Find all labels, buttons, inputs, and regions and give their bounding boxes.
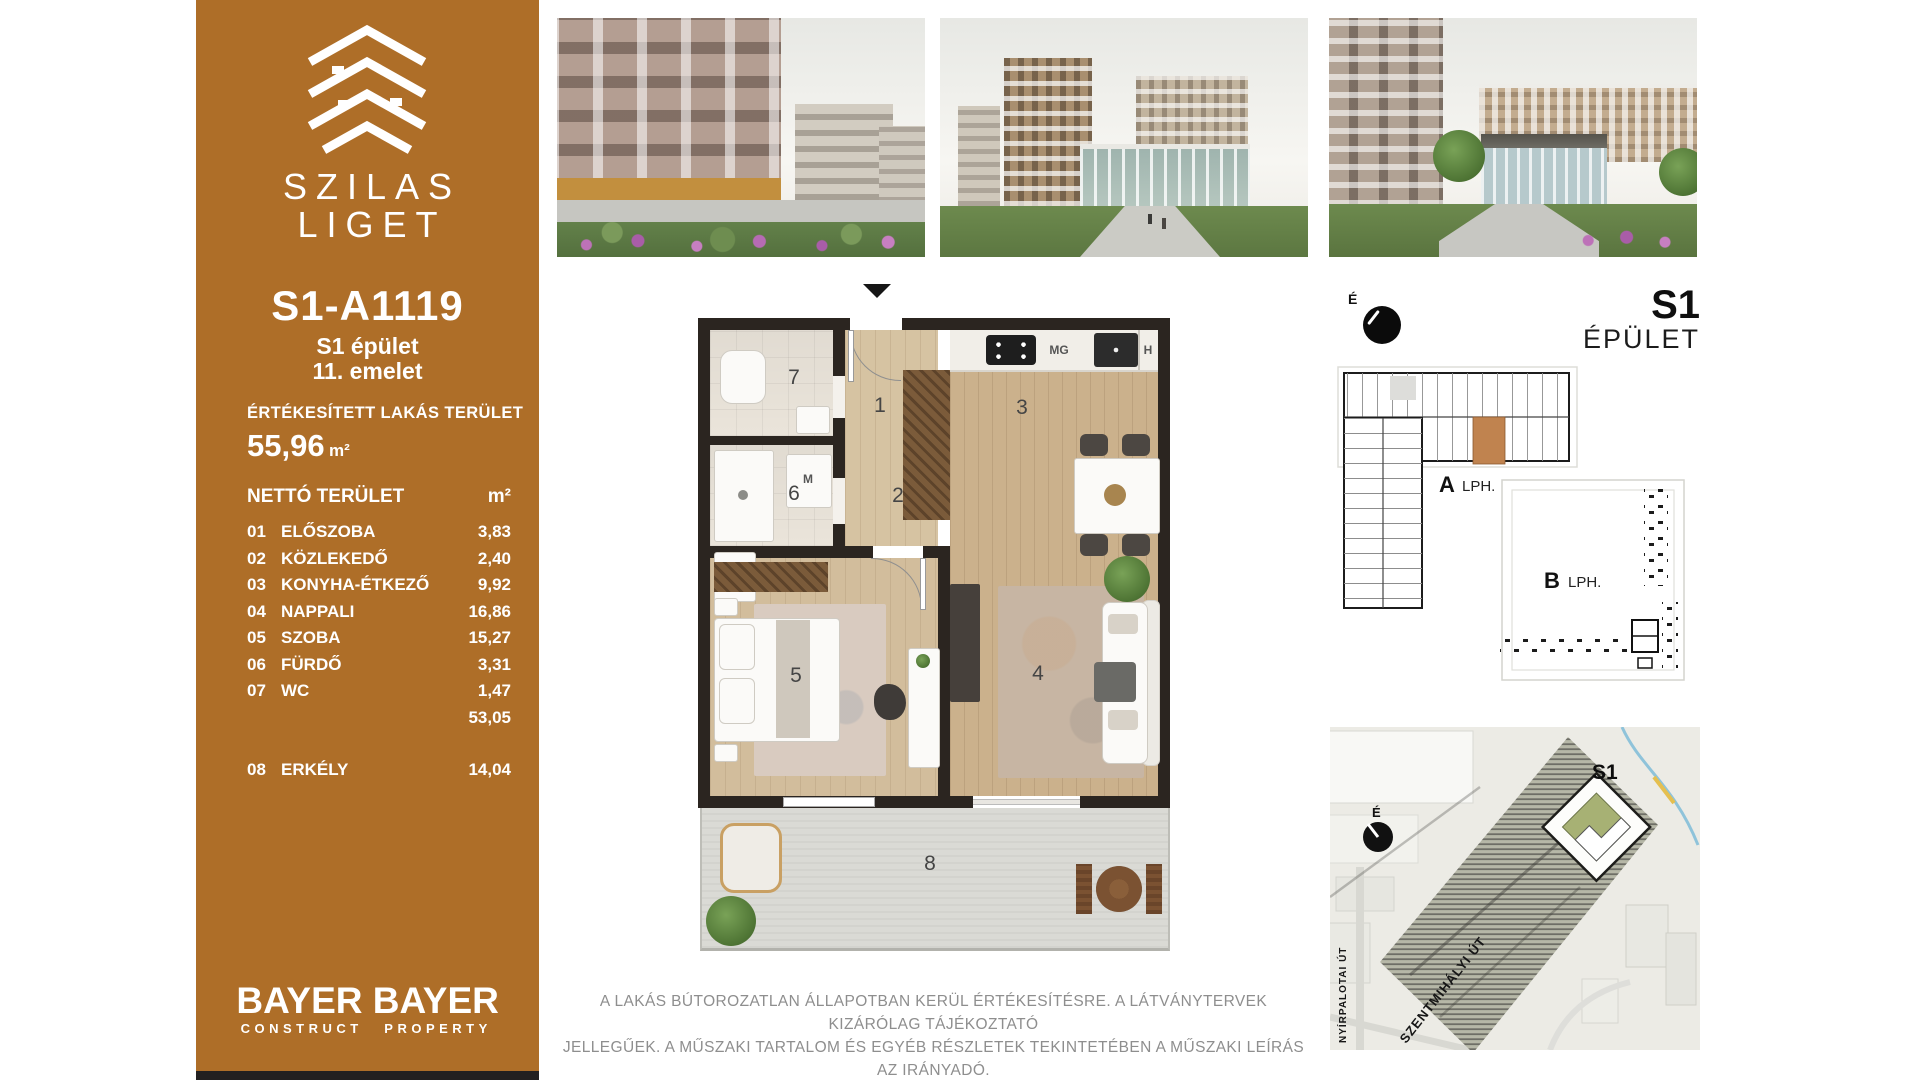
brand-name-top: SZILAS [196, 168, 539, 205]
room-name: NAPPALI [281, 602, 468, 622]
nightstand [714, 744, 738, 762]
building-title: S1 [1460, 286, 1700, 324]
north-label: É [1348, 291, 1357, 307]
room-area: 14,04 [468, 760, 511, 780]
render-photo-courtyard [557, 18, 925, 257]
floor-line: 11. emelet [196, 359, 539, 384]
glass-pavilion [1080, 144, 1250, 211]
wall [710, 436, 833, 445]
room-num: 05 [247, 628, 281, 648]
tree [1433, 130, 1485, 182]
flower-bed [557, 230, 925, 257]
building-title-block: S1 ÉPÜLET [1460, 286, 1700, 355]
terrace-plant [706, 896, 756, 946]
nightstand [714, 598, 738, 616]
net-area-unit-header: m² [488, 486, 511, 508]
room-area: 1,47 [478, 681, 511, 701]
disclaimer-line2: JELLEGŰEK. A MŰSZAKI TARTALOM ÉS EGYÉB R… [557, 1036, 1310, 1080]
a-wing-stair-core [1390, 376, 1416, 400]
table-row: 02 KÖZLEKEDŐ 2,40 [247, 549, 511, 576]
net-area-label: NETTÓ TERÜLET [247, 486, 404, 508]
compass-needle [1367, 310, 1380, 325]
s1-map-label: S1 [1592, 761, 1618, 784]
room-area: 3,31 [478, 655, 511, 675]
room-area: 16,86 [468, 602, 511, 622]
wc-door-gap [833, 376, 845, 418]
room-num: 07 [247, 681, 281, 701]
room-num: 06 [247, 655, 281, 675]
terrace-armchair [720, 823, 782, 893]
kitchen-sink [1094, 333, 1138, 367]
unit-id: S1-A1119 [196, 282, 539, 330]
sofa-throw [1094, 662, 1136, 702]
table-row-subtotal: 53,05 [247, 708, 511, 735]
b-wing-door-marks [1500, 638, 1650, 654]
room-area: 3,83 [478, 522, 511, 542]
compass-icon [1363, 306, 1401, 344]
room-number-hall: 1 [866, 394, 894, 418]
table-row: 01 ELŐSZOBA 3,83 [247, 522, 511, 549]
b-wing-door-marks [1662, 602, 1678, 668]
building-subtitle: ÉPÜLET [1460, 324, 1700, 355]
developer-logos: BAYER CONSTRUCT BAYER PROPERTY [196, 982, 539, 1035]
room-num: 08 [247, 760, 281, 780]
site-map: S1 É SZENTMIHÁLYI ÚT NYÍRPALOTAI ÚT [1330, 727, 1700, 1050]
bayer-property-line1: BAYER [373, 982, 499, 1019]
room-number-wc: 7 [780, 366, 808, 390]
terrace-table [1096, 866, 1142, 912]
room-number-bath: 6 [780, 482, 808, 506]
stair-a-suffix: LPH. [1462, 478, 1495, 495]
street-label-vertical: NYÍRPALOTAI ÚT [1336, 947, 1349, 1043]
highlighted-unit [1473, 417, 1505, 464]
shower-drain [738, 490, 748, 500]
pillow [719, 678, 755, 724]
map-building [1336, 877, 1394, 911]
pedestrian [1162, 218, 1166, 229]
dining-chair [1080, 434, 1108, 456]
sofa-cushion [1108, 614, 1138, 634]
room-name: WC [281, 681, 478, 701]
bath-door-gap [833, 478, 845, 524]
stair-b-suffix: LPH. [1568, 574, 1601, 591]
map-north-label: É [1372, 805, 1381, 820]
pedestrian [1148, 214, 1152, 224]
dining-chair [1122, 434, 1150, 456]
pillow [719, 624, 755, 670]
sidebar: SZILAS LIGET S1-A1119 S1 épület 11. emel… [196, 0, 539, 1080]
terrace-bench [1146, 864, 1162, 914]
wall [698, 318, 850, 330]
wc-sink [796, 406, 830, 434]
sold-area-value: 55,96 [247, 428, 325, 463]
brochure-page: SZILAS LIGET S1-A1119 S1 épület 11. emel… [0, 0, 1920, 1080]
room-number-living: 4 [1024, 662, 1052, 686]
room-name: FÜRDŐ [281, 655, 478, 675]
sidebar-footer-strip [196, 1071, 539, 1080]
room-num: 01 [247, 522, 281, 542]
bayer-construct-logo: BAYER CONSTRUCT [236, 982, 363, 1035]
tv-screen [976, 606, 981, 680]
room-table: 01 ELŐSZOBA 3,83 02 KÖZLEKEDŐ 2,40 03 KO… [247, 522, 511, 787]
brand-name-bottom: LIGET [196, 206, 539, 243]
table-row: 07 WC 1,47 [247, 681, 511, 708]
table-row: 03 KONYHA-ÉTKEZŐ 9,92 [247, 575, 511, 602]
wall [1080, 796, 1170, 808]
table-row: 06 FÜRDŐ 3,31 [247, 655, 511, 682]
entrance-door-leaf [848, 330, 854, 382]
bayer-construct-line1: BAYER [236, 982, 363, 1019]
fridge-label: H [1138, 343, 1158, 357]
bayer-property-line2: PROPERTY [373, 1022, 499, 1035]
sold-area-value-row: 55,96 m² [247, 428, 350, 464]
disclaimer: A LAKÁS BÚTOROZATLAN ÁLLAPOTBAN KERÜL ÉR… [557, 990, 1310, 1080]
disclaimer-line1: A LAKÁS BÚTOROZATLAN ÁLLAPOTBAN KERÜL ÉR… [557, 990, 1310, 1036]
room-number-bedroom: 5 [782, 664, 810, 688]
room-number-terrace: 8 [916, 852, 944, 876]
room-name: SZOBA [281, 628, 468, 648]
sold-area-label: ÉRTÉKESÍTETT LAKÁS TERÜLET [247, 404, 523, 423]
stair-a-label: A [1439, 472, 1455, 497]
entrance-arrow-icon [863, 284, 891, 298]
background-building [879, 126, 925, 202]
floor-plan: M MG H [698, 318, 1170, 955]
table-row: 08 ERKÉLY 14,04 [247, 760, 511, 787]
room-num: 04 [247, 602, 281, 622]
living-plant [1104, 556, 1150, 602]
terrace-sliding-door [973, 799, 1080, 805]
sofa-cushion [1108, 710, 1138, 730]
map-building [1666, 933, 1696, 1005]
net-area-header: NETTÓ TERÜLET m² [247, 486, 511, 508]
bayer-property-logo: BAYER PROPERTY [373, 982, 499, 1035]
table-row: 04 NAPPALI 16,86 [247, 602, 511, 629]
flower-bed [1569, 224, 1697, 257]
cooktop [986, 335, 1036, 365]
key-plan: A LPH. B LPH. [1332, 358, 1712, 703]
stair-b-label: B [1544, 568, 1560, 593]
desk-plant [916, 654, 930, 668]
room-number-corridor: 2 [884, 484, 912, 508]
terrace-bench [1076, 864, 1092, 914]
bedroom-window [783, 797, 875, 807]
table-row: 05 SZOBA 15,27 [247, 628, 511, 655]
room-num: 02 [247, 549, 281, 569]
room-num: 03 [247, 575, 281, 595]
room-area-subtotal: 53,05 [468, 708, 511, 728]
building-line: S1 épület [196, 334, 539, 359]
room-area: 15,27 [468, 628, 511, 648]
tower-building [1004, 58, 1092, 206]
sold-area-unit: m² [329, 441, 350, 460]
tree [1659, 148, 1697, 196]
room-area: 2,40 [478, 549, 511, 569]
bedroom-door-leaf [920, 558, 926, 610]
render-photo-promenade [1329, 18, 1697, 257]
toilet [720, 350, 766, 404]
b-wing-door-marks [1644, 482, 1668, 586]
pavilion-roof [1481, 134, 1607, 148]
building-facade [557, 18, 781, 190]
cooktop-label: MG [1036, 343, 1082, 357]
dining-chair [1122, 534, 1150, 556]
table-centerpiece [1104, 484, 1126, 506]
szilas-liget-logo-icon [302, 22, 432, 154]
glass-pavilion [1481, 148, 1607, 206]
wall [698, 318, 710, 808]
b-wing-core-small [1638, 658, 1652, 668]
room-name: ELŐSZOBA [281, 522, 478, 542]
tower-building [1329, 18, 1443, 206]
desk-chair [874, 684, 906, 720]
wall [902, 318, 1170, 330]
bedroom-wardrobe [714, 562, 828, 592]
room-name: ERKÉLY [281, 760, 468, 780]
room-number-kitchen: 3 [1008, 396, 1036, 420]
render-photo-towers [940, 18, 1308, 257]
room-name: KÖZLEKEDŐ [281, 549, 478, 569]
dining-chair [1080, 534, 1108, 556]
bayer-construct-line2: CONSTRUCT [236, 1022, 363, 1035]
background-building [958, 106, 1000, 206]
map-building [1330, 731, 1473, 803]
room-area: 9,92 [478, 575, 511, 595]
map-building [1626, 905, 1668, 967]
room-name: KONYHA-ÉTKEZŐ [281, 575, 478, 595]
